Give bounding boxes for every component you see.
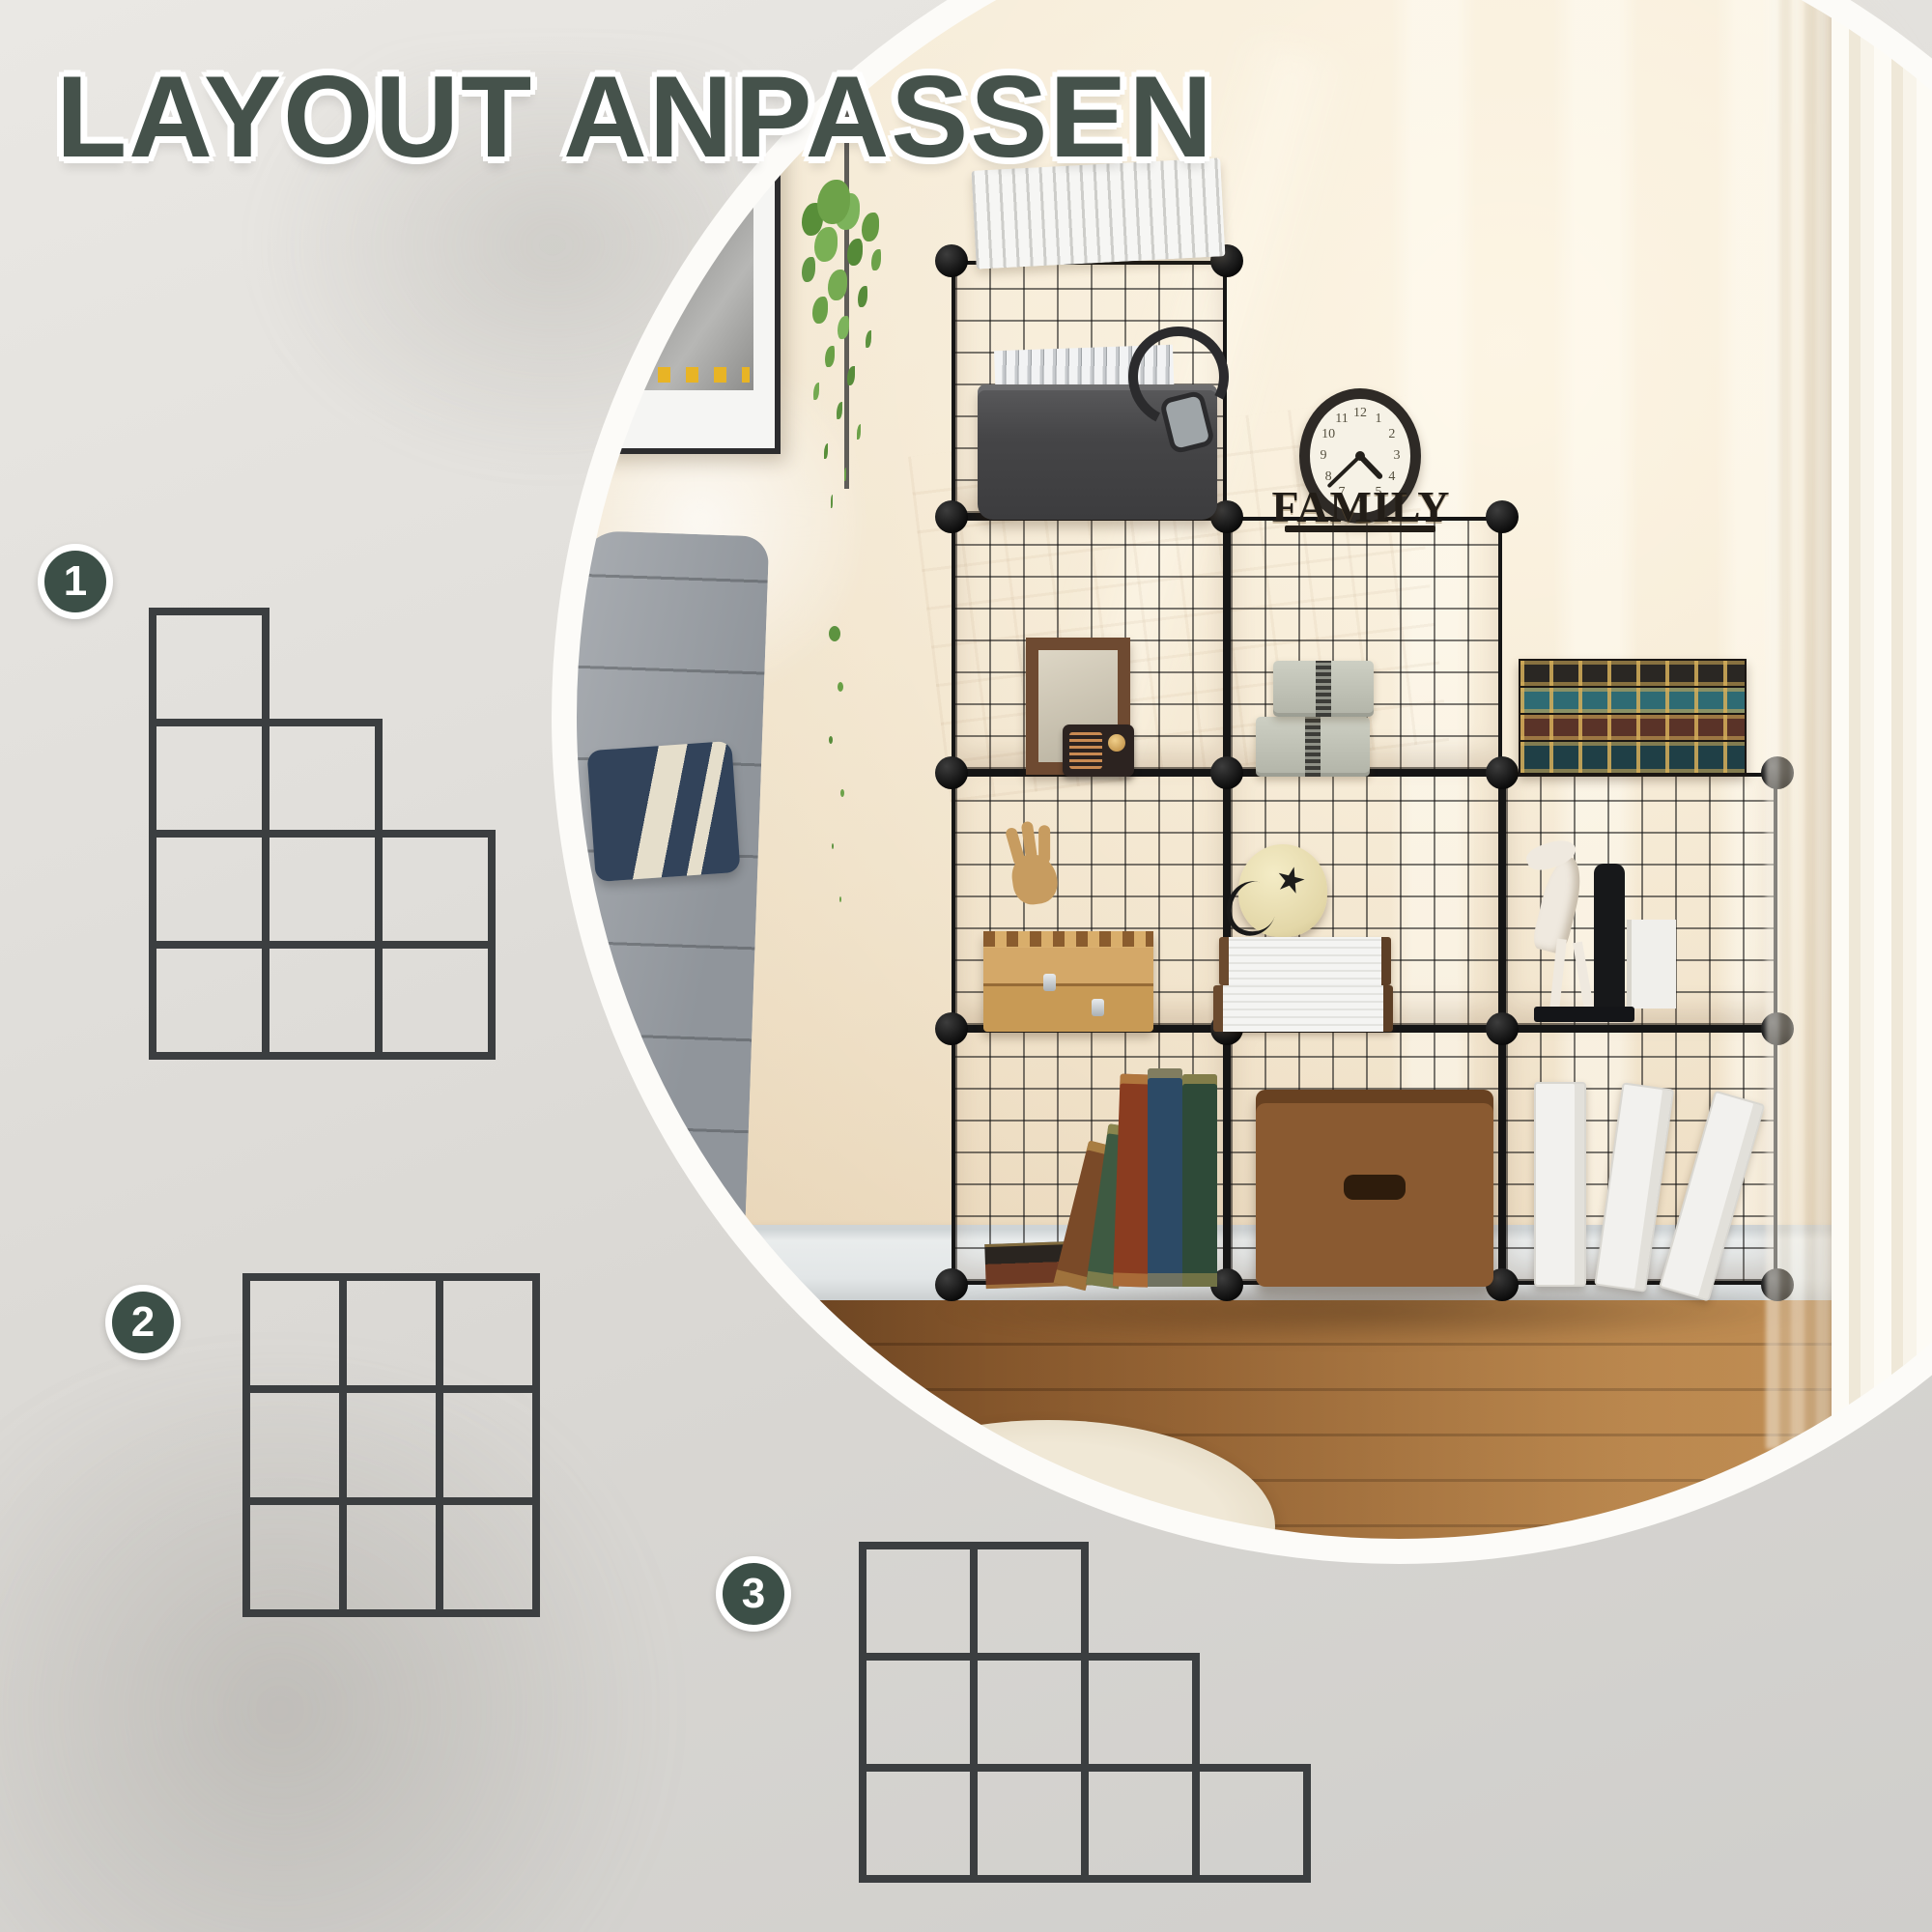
- layout-cell: [242, 1497, 347, 1617]
- helmet-star-icon: ★: [1270, 857, 1310, 904]
- layout-cell: [339, 1497, 443, 1617]
- layout-cell: [242, 1385, 347, 1505]
- layout-cell: [339, 1273, 443, 1393]
- clock-numeral: 10: [1321, 427, 1335, 442]
- wooden-box: [983, 931, 1153, 1032]
- connector-ball: [935, 1268, 968, 1301]
- layout-cell: [149, 719, 270, 838]
- layout-option-1-diagram: [149, 608, 496, 1060]
- clock-numeral: 1: [1376, 412, 1382, 427]
- book-spine: [1519, 740, 1747, 775]
- white-binder: [1534, 1082, 1586, 1287]
- radio-grille: [1069, 732, 1102, 769]
- standing-book: [1182, 1074, 1217, 1287]
- layout-cell: [970, 1542, 1089, 1661]
- layout-cell: [970, 1764, 1089, 1883]
- layout-row: [242, 1497, 540, 1617]
- layout-row: [859, 1542, 1311, 1661]
- box-zipper: [1316, 661, 1331, 717]
- layout-cell: [262, 830, 383, 949]
- layout-cell: [436, 1497, 540, 1617]
- box-latch: [1092, 999, 1104, 1016]
- layout-row: [149, 719, 496, 838]
- connector-ball: [935, 500, 968, 533]
- layout-cell: [970, 1653, 1089, 1772]
- standing-book: [1148, 1068, 1182, 1287]
- clock-numeral: 12: [1353, 406, 1367, 421]
- layout-row: [242, 1385, 540, 1505]
- layout-cell: [859, 1764, 978, 1883]
- layout-cell: [436, 1273, 540, 1393]
- layout-cell: [149, 830, 270, 949]
- layout-row: [149, 941, 496, 1060]
- layout-cell: [859, 1653, 978, 1772]
- layout-cell: [339, 1385, 443, 1505]
- layout-option-3-diagram: [859, 1542, 1311, 1883]
- plant-vine: [829, 626, 840, 641]
- option-2-number: 2: [131, 1298, 155, 1347]
- option-2-badge: 2: [105, 1285, 181, 1360]
- connector-ball: [1486, 500, 1519, 533]
- layout-cell: [242, 1273, 347, 1393]
- connector-ball: [1210, 756, 1243, 789]
- book-spine: [1519, 686, 1747, 715]
- wicker-basket: [1256, 1090, 1493, 1287]
- curtain: [1832, 0, 1932, 1449]
- box-checker-trim: [983, 931, 1153, 947]
- layout-row: [859, 1764, 1311, 1883]
- option-1-number: 1: [64, 557, 87, 606]
- layout-cell: [262, 941, 383, 1060]
- box-groove: [983, 983, 1153, 986]
- connector-ball: [1486, 756, 1519, 789]
- fabric-box-small: [1273, 661, 1374, 717]
- book-spine: [1519, 713, 1747, 742]
- basket-handle: [1344, 1175, 1406, 1200]
- connector-ball: [935, 244, 968, 277]
- layout-cell: [859, 1542, 978, 1661]
- layout-cell: [1081, 1764, 1200, 1883]
- football-helmet: ★: [1238, 844, 1327, 937]
- option-1-badge: 1: [38, 544, 113, 619]
- connector-ball: [935, 1012, 968, 1045]
- bookend-base: [1534, 1007, 1634, 1022]
- clock-numeral: 3: [1394, 448, 1401, 464]
- clock-numeral: 9: [1321, 448, 1327, 464]
- clock-center-dot: [1355, 451, 1365, 461]
- book-spine: [1519, 659, 1747, 688]
- radio-knob: [1108, 734, 1125, 752]
- white-book: [1219, 937, 1391, 985]
- box-zipper: [1305, 717, 1321, 777]
- box-latch: [1043, 974, 1056, 991]
- finger: [1038, 825, 1050, 864]
- vintage-radio: [1063, 724, 1134, 777]
- option-3-badge: 3: [716, 1556, 791, 1632]
- layout-cell: [375, 941, 496, 1060]
- page-title: LAYOUT ANPASSEN: [56, 50, 1214, 184]
- white-book: [1213, 985, 1393, 1032]
- bookend-book: [1627, 920, 1676, 1009]
- layout-row: [242, 1273, 540, 1393]
- layout-row: [149, 608, 496, 726]
- product-marketing-image: 121234567891011 FAMILY: [0, 0, 1932, 1932]
- layout-cell: [149, 608, 270, 726]
- clock-numeral: 2: [1388, 427, 1395, 442]
- layout-cell: [262, 719, 383, 838]
- horse-bookend-board: [1594, 864, 1625, 1018]
- layout-cell: [1081, 1653, 1200, 1772]
- antique-books-stack: [1519, 659, 1747, 775]
- family-sign-base: [1285, 526, 1435, 532]
- option-3-number: 3: [742, 1570, 765, 1618]
- connector-ball: [935, 756, 968, 789]
- fabric-box-large: [1256, 717, 1370, 777]
- layout-cell: [436, 1385, 540, 1505]
- layout-row: [149, 830, 496, 949]
- connector-ball: [1486, 1012, 1519, 1045]
- striped-pillow: [586, 741, 740, 882]
- layout-option-2-diagram: [242, 1273, 540, 1617]
- layout-cell: [375, 830, 496, 949]
- clock-numeral: 11: [1335, 412, 1348, 427]
- layout-cell: [149, 941, 270, 1060]
- layout-cell: [1192, 1764, 1311, 1883]
- layout-row: [859, 1653, 1311, 1772]
